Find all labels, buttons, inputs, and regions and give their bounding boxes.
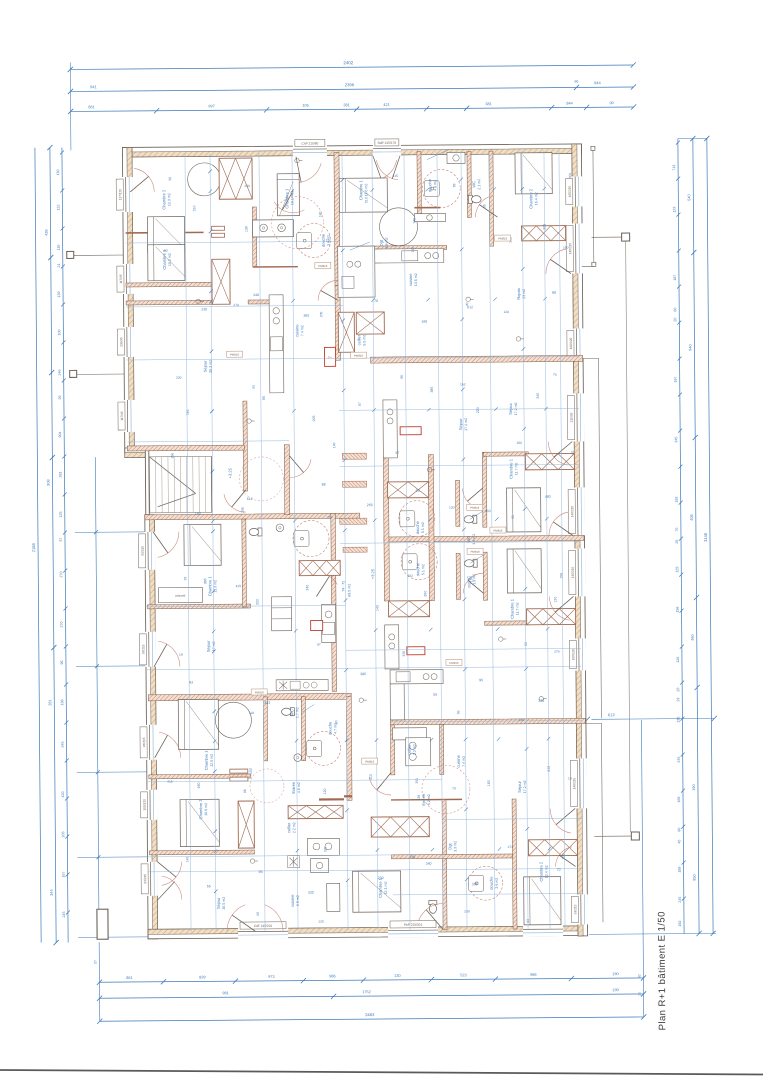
svg-text:5.1 m2: 5.1 m2	[421, 564, 425, 575]
svg-text:WC: WC	[471, 181, 476, 188]
svg-text:45: 45	[677, 840, 681, 844]
svg-text:PM919: PM919	[318, 264, 327, 268]
svg-text:55: 55	[511, 515, 515, 519]
svg-text:220: 220	[476, 407, 480, 413]
svg-text:70: 70	[374, 299, 378, 303]
svg-text:190: 190	[612, 972, 618, 976]
svg-text:408: 408	[690, 514, 694, 520]
svg-text:220: 220	[255, 599, 259, 605]
svg-text:861: 861	[88, 105, 94, 109]
svg-text:117/95: 117/95	[119, 274, 123, 284]
svg-text:90: 90	[334, 720, 338, 724]
svg-text:439: 439	[45, 229, 49, 235]
svg-text:265: 265	[367, 503, 373, 507]
svg-text:97: 97	[395, 451, 399, 455]
svg-text:150: 150	[678, 921, 682, 927]
svg-text:69.5 m2: 69.5 m2	[347, 584, 351, 597]
svg-text:235/95: 235/95	[119, 337, 123, 347]
svg-text:270: 270	[59, 571, 63, 577]
svg-text:CH: CH	[328, 355, 332, 359]
svg-text:3.6 m2: 3.6 m2	[495, 878, 499, 889]
svg-text:433: 433	[264, 701, 270, 705]
svg-text:93: 93	[252, 385, 256, 389]
svg-text:5.2 m2: 5.2 m2	[427, 794, 431, 805]
svg-text:88: 88	[322, 482, 326, 486]
svg-text:cellier: cellier	[356, 334, 361, 345]
svg-text:29: 29	[676, 698, 680, 702]
svg-text:cuisine: cuisine	[408, 273, 413, 286]
svg-text:245: 245	[678, 897, 682, 903]
svg-text:Chambre 1: Chambre 1	[358, 179, 363, 200]
svg-text:140: 140	[411, 247, 415, 253]
svg-text:PM919: PM919	[470, 506, 479, 510]
svg-text:20: 20	[638, 992, 642, 996]
svg-text:330: 330	[308, 891, 314, 895]
svg-text:cuisine: cuisine	[456, 754, 461, 767]
svg-text:70: 70	[557, 868, 561, 872]
svg-text:160: 160	[195, 511, 201, 515]
svg-text:5.1 m2: 5.1 m2	[421, 522, 425, 533]
svg-text:100: 100	[57, 330, 61, 336]
svg-text:415: 415	[167, 780, 173, 784]
svg-text:97: 97	[358, 402, 362, 406]
svg-text:130: 130	[394, 974, 400, 978]
svg-text:256: 256	[559, 573, 563, 579]
svg-text:10.6 m2: 10.6 m2	[204, 803, 208, 816]
svg-text:180: 180	[410, 855, 416, 859]
svg-text:180: 180	[563, 246, 569, 250]
svg-text:WC: WC	[289, 709, 294, 716]
svg-text:RdP 215/170: RdP 215/170	[378, 141, 397, 145]
svg-text:3.8 m2: 3.8 m2	[385, 237, 389, 248]
svg-text:Chambre 2: Chambre 2	[198, 799, 203, 820]
svg-text:Séjour: Séjour	[517, 780, 522, 792]
svg-text:197: 197	[674, 377, 678, 383]
svg-text:120: 120	[61, 791, 65, 797]
svg-text:2.2 m2: 2.2 m2	[292, 822, 296, 833]
svg-text:Chambre 1: Chambre 1	[508, 458, 513, 479]
svg-text:10.1 m2: 10.1 m2	[290, 192, 294, 205]
svg-text:365: 365	[472, 882, 478, 886]
svg-text:301: 301	[415, 778, 419, 784]
svg-text:345: 345	[674, 437, 678, 443]
svg-text:1.9 m2: 1.9 m2	[472, 574, 476, 585]
svg-text:19: 19	[326, 238, 330, 242]
svg-text:95: 95	[259, 870, 263, 874]
svg-text:230: 230	[201, 307, 207, 311]
svg-text:23 m2: 23 m2	[522, 289, 526, 299]
svg-text:150: 150	[249, 768, 253, 774]
svg-text:158: 158	[676, 607, 680, 613]
svg-text:Dgt: Dgt	[379, 239, 384, 246]
svg-text:142: 142	[376, 605, 380, 611]
svg-text:109: 109	[677, 797, 681, 803]
svg-text:839: 839	[199, 975, 205, 979]
svg-text:187: 187	[673, 275, 677, 281]
svg-text:162: 162	[408, 574, 414, 578]
svg-text:139: 139	[57, 292, 61, 298]
svg-text:Plan R+1 bâtiment E 1/50: Plan R+1 bâtiment E 1/50	[656, 911, 668, 1030]
svg-text:Chambre 1: Chambre 1	[509, 598, 514, 619]
svg-text:205: 205	[561, 854, 565, 860]
svg-text:7.4 m2: 7.4 m2	[462, 756, 466, 767]
svg-text:908: 908	[47, 479, 51, 485]
svg-text:460: 460	[545, 495, 551, 499]
svg-text:523: 523	[460, 973, 466, 977]
svg-text:986: 986	[329, 974, 335, 978]
svg-text:Repas: Repas	[516, 288, 521, 300]
svg-text:139: 139	[245, 226, 249, 232]
svg-text:122: 122	[56, 205, 60, 211]
svg-text:123: 123	[672, 207, 676, 213]
svg-text:140/215: 140/215	[570, 505, 574, 517]
svg-text:11.7 m2: 11.7 m2	[515, 603, 519, 616]
svg-text:140: 140	[332, 442, 336, 448]
svg-text:981: 981	[222, 991, 228, 995]
svg-text:Dgt: Dgt	[447, 842, 452, 849]
svg-text:100/120: 100/120	[569, 338, 573, 350]
svg-text:88: 88	[452, 183, 456, 187]
svg-text:douche: douche	[415, 520, 420, 534]
svg-text:3.3 m2: 3.3 m2	[413, 744, 417, 755]
svg-text:2188: 2188	[31, 542, 36, 552]
svg-text:85: 85	[482, 204, 486, 208]
svg-text:433: 433	[485, 509, 491, 513]
svg-text:93: 93	[189, 680, 193, 684]
svg-text:904: 904	[58, 432, 62, 438]
svg-text:PbP 215/201: PbP 215/201	[404, 923, 423, 927]
svg-text:93/215: 93/215	[141, 644, 145, 654]
svg-text:62: 62	[524, 642, 528, 646]
svg-text:415: 415	[392, 174, 398, 178]
svg-text:cellier: cellier	[286, 822, 291, 833]
svg-text:745: 745	[412, 218, 416, 224]
svg-text:270: 270	[60, 621, 64, 627]
svg-text:Séjour: Séjour	[206, 640, 211, 652]
svg-text:997: 997	[208, 104, 214, 108]
svg-text:205: 205	[312, 416, 316, 422]
svg-text:93/215: 93/215	[141, 546, 145, 556]
svg-text:215/95: 215/95	[570, 412, 574, 422]
svg-text:381: 381	[485, 102, 491, 106]
svg-text:189: 189	[678, 867, 682, 873]
svg-text:125: 125	[59, 511, 63, 517]
svg-text:941: 941	[90, 84, 97, 89]
svg-text:100/120: 100/120	[571, 648, 575, 660]
svg-text:placard: placard	[175, 594, 185, 598]
svg-text:100/120: 100/120	[143, 799, 147, 811]
svg-text:80: 80	[677, 828, 681, 832]
svg-text:55: 55	[168, 177, 172, 181]
svg-text:70: 70	[675, 528, 679, 532]
svg-text:301: 301	[467, 582, 471, 588]
svg-text:13.6 m2: 13.6 m2	[364, 184, 368, 197]
svg-text:126: 126	[676, 657, 680, 663]
svg-text:Séjour: Séjour	[458, 418, 463, 430]
svg-text:20: 20	[93, 960, 97, 964]
svg-text:230: 230	[464, 909, 470, 913]
svg-text:986: 986	[530, 973, 536, 977]
svg-text:120: 120	[318, 919, 324, 923]
svg-text:+3.25: +3.25	[227, 467, 232, 478]
svg-text:Séjour: Séjour	[203, 360, 208, 372]
svg-text:130: 130	[56, 170, 60, 176]
svg-text:140: 140	[185, 857, 189, 863]
svg-text:1.7 m2: 1.7 m2	[295, 707, 299, 718]
svg-text:12.1 m2: 12.1 m2	[384, 881, 388, 894]
svg-text:950: 950	[693, 874, 697, 880]
svg-text:117/120: 117/120	[118, 189, 122, 201]
svg-text:6.9 m2: 6.9 m2	[296, 895, 300, 906]
svg-text:55: 55	[207, 884, 211, 888]
svg-text:203: 203	[61, 831, 65, 837]
svg-text:340: 340	[426, 862, 432, 866]
svg-text:97: 97	[317, 642, 321, 646]
svg-text:245: 245	[62, 911, 66, 917]
svg-text:20: 20	[676, 688, 680, 692]
svg-text:301: 301	[568, 173, 572, 179]
svg-text:19: 19	[179, 653, 183, 657]
svg-text:10.2 m2: 10.2 m2	[168, 253, 172, 266]
svg-text:WC: WC	[466, 576, 471, 583]
svg-text:Chambre 1: Chambre 1	[204, 750, 209, 771]
svg-text:510: 510	[547, 766, 551, 772]
svg-text:88: 88	[243, 789, 247, 793]
svg-text:douche: douche	[415, 562, 420, 576]
svg-text:973: 973	[268, 975, 274, 979]
svg-text:90: 90	[256, 912, 260, 916]
svg-text:180: 180	[487, 780, 491, 786]
svg-text:365: 365	[303, 314, 309, 318]
svg-text:2396: 2396	[345, 82, 355, 87]
svg-text:93: 93	[526, 919, 530, 923]
svg-text:Séjour: Séjour	[508, 403, 513, 415]
svg-text:70: 70	[553, 373, 557, 377]
svg-text:douche: douche	[327, 721, 332, 735]
svg-text:386: 386	[430, 387, 434, 393]
svg-text:21: 21	[57, 264, 61, 268]
svg-text:138: 138	[60, 699, 64, 705]
svg-text:460: 460	[691, 634, 695, 640]
svg-text:17.2 m2: 17.2 m2	[514, 402, 518, 415]
svg-text:96: 96	[60, 660, 64, 664]
svg-text:230: 230	[519, 718, 525, 722]
svg-text:25: 25	[675, 540, 679, 544]
svg-text:PM919: PM919	[354, 354, 363, 358]
svg-text:160/215: 160/215	[568, 186, 572, 198]
svg-text:861: 861	[126, 976, 132, 980]
svg-text:120: 120	[449, 505, 455, 509]
svg-text:260: 260	[423, 591, 427, 597]
svg-text:55: 55	[456, 710, 460, 714]
svg-text:WC: WC	[466, 536, 471, 543]
svg-text:PM919: PM919	[498, 236, 507, 240]
svg-text:205: 205	[319, 312, 323, 318]
svg-text:190: 190	[692, 784, 696, 790]
svg-text:60: 60	[673, 308, 677, 312]
svg-text:19: 19	[568, 777, 572, 781]
svg-text:1752: 1752	[362, 990, 370, 994]
svg-text:117/95: 117/95	[120, 411, 124, 421]
svg-text:193: 193	[675, 497, 679, 503]
svg-text:Séjour: Séjour	[216, 897, 221, 909]
svg-text:60: 60	[574, 79, 578, 83]
svg-text:93/215: 93/215	[143, 874, 147, 884]
svg-text:940: 940	[688, 344, 692, 350]
svg-text:90: 90	[465, 302, 469, 306]
svg-text:11.3 m2: 11.3 m2	[213, 580, 217, 593]
svg-text:612: 612	[608, 712, 615, 717]
svg-text:PM919: PM919	[450, 661, 459, 665]
svg-text:ChP 215/80: ChP 215/80	[301, 141, 318, 145]
svg-text:cuisine: cuisine	[290, 894, 295, 907]
svg-text:140/215: 140/215	[568, 243, 572, 255]
svg-text:17.2 m2: 17.2 m2	[464, 418, 468, 431]
svg-text:12.3 m2: 12.3 m2	[167, 193, 171, 206]
svg-text:310: 310	[369, 774, 373, 780]
svg-text:1.9 m2: 1.9 m2	[472, 534, 476, 545]
svg-text:85: 85	[262, 396, 266, 400]
svg-text:Chambre 1: Chambre 1	[378, 877, 383, 898]
svg-text:274: 274	[554, 650, 560, 654]
svg-text:344: 344	[50, 889, 54, 895]
svg-text:57: 57	[59, 537, 63, 541]
svg-text:245: 245	[61, 741, 65, 747]
svg-text:135: 135	[676, 717, 680, 723]
svg-text:385: 385	[360, 672, 366, 676]
svg-text:7.4 m2: 7.4 m2	[300, 325, 304, 336]
svg-text:93: 93	[416, 489, 420, 493]
svg-text:120: 120	[553, 597, 557, 603]
svg-text:Chambre 2: Chambre 2	[528, 188, 533, 209]
svg-text:93: 93	[183, 577, 187, 581]
svg-text:415: 415	[236, 584, 242, 588]
svg-text:3148: 3148	[703, 532, 708, 542]
svg-text:PM919: PM919	[230, 353, 239, 357]
svg-text:510: 510	[364, 197, 368, 203]
svg-text:13.6 m2: 13.6 m2	[414, 273, 418, 286]
svg-text:310: 310	[192, 205, 196, 211]
svg-text:5.5 m2: 5.5 m2	[362, 335, 366, 346]
svg-text:205: 205	[241, 507, 245, 513]
svg-text:Entrée: Entrée	[421, 793, 426, 806]
svg-text:12.5 m2: 12.5 m2	[210, 754, 214, 767]
svg-text:PM919: PM919	[365, 760, 374, 764]
svg-text:90: 90	[609, 101, 613, 105]
svg-text:162: 162	[460, 382, 466, 386]
svg-text:180: 180	[318, 211, 322, 217]
svg-text:240: 240	[305, 585, 309, 591]
svg-text:240: 240	[536, 393, 540, 399]
svg-text:274: 274	[508, 845, 514, 849]
svg-text:T4 - 72: T4 - 72	[341, 581, 345, 592]
svg-text:douche: douche	[427, 178, 432, 192]
svg-text:116: 116	[57, 245, 61, 251]
svg-text:140/215: 140/215	[572, 777, 576, 789]
svg-text:16.4 m2: 16.4 m2	[534, 192, 538, 205]
svg-text:381: 381	[343, 103, 349, 107]
svg-text:256: 256	[170, 453, 174, 459]
svg-text:55: 55	[433, 693, 437, 697]
svg-text:+3.25: +3.25	[370, 568, 375, 579]
svg-text:Chambre 2: Chambre 2	[161, 189, 166, 210]
svg-text:PM919: PM919	[255, 690, 264, 694]
svg-text:88: 88	[552, 291, 556, 295]
svg-text:230: 230	[176, 376, 182, 380]
svg-text:70: 70	[452, 786, 456, 790]
svg-text:CdF 215/201: CdF 215/201	[254, 924, 273, 928]
svg-text:20: 20	[673, 318, 677, 322]
svg-text:95: 95	[479, 678, 483, 682]
svg-text:140/215: 140/215	[571, 566, 575, 578]
svg-text:129: 129	[675, 567, 679, 573]
svg-text:12.4 m2: 12.4 m2	[545, 865, 549, 878]
svg-text:745: 745	[186, 410, 190, 416]
svg-text:118: 118	[327, 515, 332, 519]
svg-text:Chambre 1: Chambre 1	[207, 576, 212, 597]
svg-text:281: 281	[58, 471, 62, 477]
svg-text:4.8 m2: 4.8 m2	[433, 180, 437, 191]
svg-text:190: 190	[612, 988, 618, 992]
svg-text:70: 70	[164, 249, 168, 253]
svg-text:274: 274	[233, 303, 239, 307]
svg-text:cellier: cellier	[407, 744, 412, 755]
svg-text:4.6 m2: 4.6 m2	[297, 782, 301, 793]
svg-text:17.2 m2: 17.2 m2	[523, 780, 527, 793]
svg-text:205: 205	[543, 224, 547, 230]
svg-text:118: 118	[249, 711, 254, 715]
svg-text:93/215: 93/215	[573, 904, 577, 914]
svg-text:2.1 m2: 2.1 m2	[477, 179, 481, 190]
svg-text:11.7 m2: 11.7 m2	[514, 463, 518, 476]
svg-text:17 m2: 17 m2	[212, 641, 216, 651]
svg-text:120: 120	[503, 310, 509, 314]
svg-text:Chambre 2: Chambre 2	[539, 861, 544, 882]
svg-text:230: 230	[244, 184, 250, 188]
svg-text:Entrée: Entrée	[291, 781, 296, 794]
svg-text:62: 62	[570, 450, 574, 454]
svg-text:93/215: 93/215	[142, 737, 146, 747]
svg-text:16.5 m2: 16.5 m2	[222, 897, 226, 910]
svg-text:35.3 m2: 35.3 m2	[209, 360, 213, 373]
svg-text:26: 26	[58, 396, 62, 400]
svg-text:245: 245	[677, 757, 681, 763]
svg-text:281: 281	[48, 699, 52, 705]
svg-text:421: 421	[383, 103, 389, 107]
svg-text:180: 180	[516, 441, 522, 445]
svg-text:2402: 2402	[343, 60, 353, 65]
svg-text:844: 844	[566, 101, 572, 105]
svg-text:105: 105	[302, 104, 308, 108]
svg-text:PM919: PM919	[471, 550, 480, 554]
svg-text:944: 944	[594, 80, 601, 85]
svg-text:167: 167	[62, 871, 66, 877]
svg-text:82: 82	[637, 974, 641, 978]
svg-text:88: 88	[400, 375, 404, 379]
svg-text:PM919: PM919	[493, 529, 502, 533]
svg-text:2463: 2463	[365, 1012, 375, 1017]
svg-text:713: 713	[672, 165, 676, 171]
svg-text:120: 120	[323, 788, 327, 794]
svg-text:246: 246	[58, 370, 62, 376]
svg-text:260: 260	[197, 782, 201, 788]
svg-text:3.3 m2: 3.3 m2	[453, 841, 457, 852]
svg-text:douche: douche	[489, 876, 494, 890]
svg-text:160: 160	[421, 320, 427, 324]
svg-text:cuisine: cuisine	[294, 324, 299, 337]
svg-text:338: 338	[402, 651, 406, 657]
svg-text:340: 340	[253, 293, 259, 297]
